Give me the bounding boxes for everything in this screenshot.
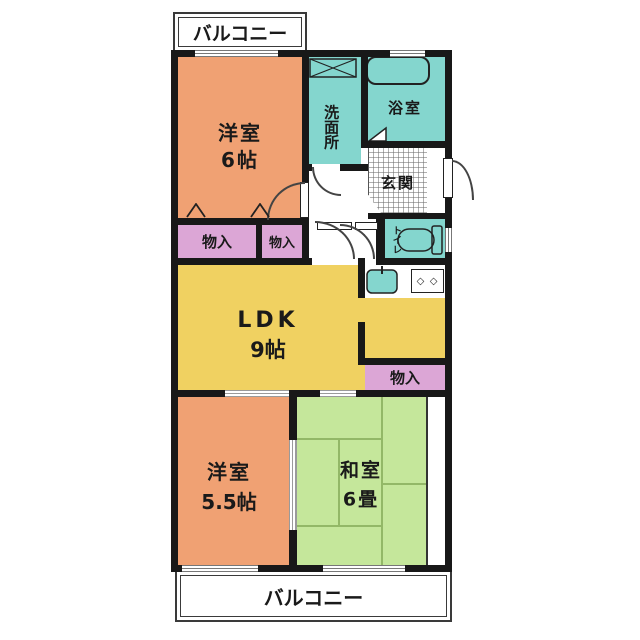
closet-door-mark <box>186 203 206 218</box>
room-name: 洋室 <box>218 120 262 147</box>
storage-closet-3: 物入 <box>365 365 445 390</box>
bath-label: 浴室 <box>388 98 422 118</box>
entrance-label: 玄関 <box>381 173 415 193</box>
wall <box>358 358 452 365</box>
balcony-bottom-label: バルコニー <box>177 572 450 620</box>
toilet-label: トイレ <box>389 226 402 255</box>
storage-1-label: 物入 <box>202 231 232 252</box>
storage-3-label: 物入 <box>390 367 420 388</box>
stove-burners: ◇ ◇ <box>417 276 439 287</box>
washroom-label: 洗面所 <box>321 105 341 150</box>
room-size: 5.5帖 <box>201 487 256 517</box>
wall <box>171 258 312 265</box>
room-size: 6帖 <box>218 147 262 174</box>
wall <box>171 50 178 572</box>
balcony-top: バルコニー <box>173 12 307 52</box>
sliding-door <box>225 390 289 397</box>
wall <box>361 141 452 148</box>
bathtub-icon <box>366 56 430 85</box>
ldk-label: LDK 9帖 <box>237 306 298 364</box>
wall <box>171 390 452 397</box>
room-size: 6畳 <box>340 486 382 515</box>
ldk-name: LDK <box>237 306 298 336</box>
ldk-size: 9帖 <box>237 336 298 364</box>
window <box>390 50 425 57</box>
tatami-line <box>381 483 427 485</box>
wall <box>445 50 452 572</box>
storage-closet-1: 物入 <box>178 225 256 258</box>
room-name: 和室 <box>340 457 382 486</box>
wall <box>376 258 452 265</box>
balcony-top-label: バルコニー <box>175 14 305 50</box>
gas-stove-icon: ◇ ◇ <box>411 269 444 293</box>
window <box>323 565 405 572</box>
sliding-door <box>289 440 297 530</box>
entrance-step-line <box>368 148 369 195</box>
floor-plan: バルコニー バルコニー 物入 物入 物入 <box>0 0 640 640</box>
window <box>195 50 278 57</box>
wall <box>361 57 368 148</box>
room-western-55-label: 洋室 5.5帖 <box>201 457 256 517</box>
wall <box>376 213 385 265</box>
entrance-door-arc <box>452 160 474 200</box>
washing-machine-pan-icon <box>309 58 357 78</box>
tatami-room-edge <box>426 397 428 565</box>
sliding-door <box>320 390 356 397</box>
storage-closet-2: 物入 <box>262 225 302 258</box>
balcony-bottom: バルコニー <box>175 570 452 622</box>
wall <box>368 213 452 219</box>
window <box>182 565 258 572</box>
closet-door-mark <box>250 203 270 218</box>
wall <box>256 225 262 258</box>
room-ldk-east <box>365 298 445 358</box>
room-name: 洋室 <box>201 457 256 487</box>
window <box>445 228 452 252</box>
room-western-6-label: 洋室 6帖 <box>218 120 262 174</box>
wall <box>358 258 365 298</box>
room-japanese-label: 和室 6畳 <box>340 457 382 516</box>
kitchen-sink-icon <box>366 266 398 294</box>
storage-2-label: 物入 <box>269 232 295 251</box>
